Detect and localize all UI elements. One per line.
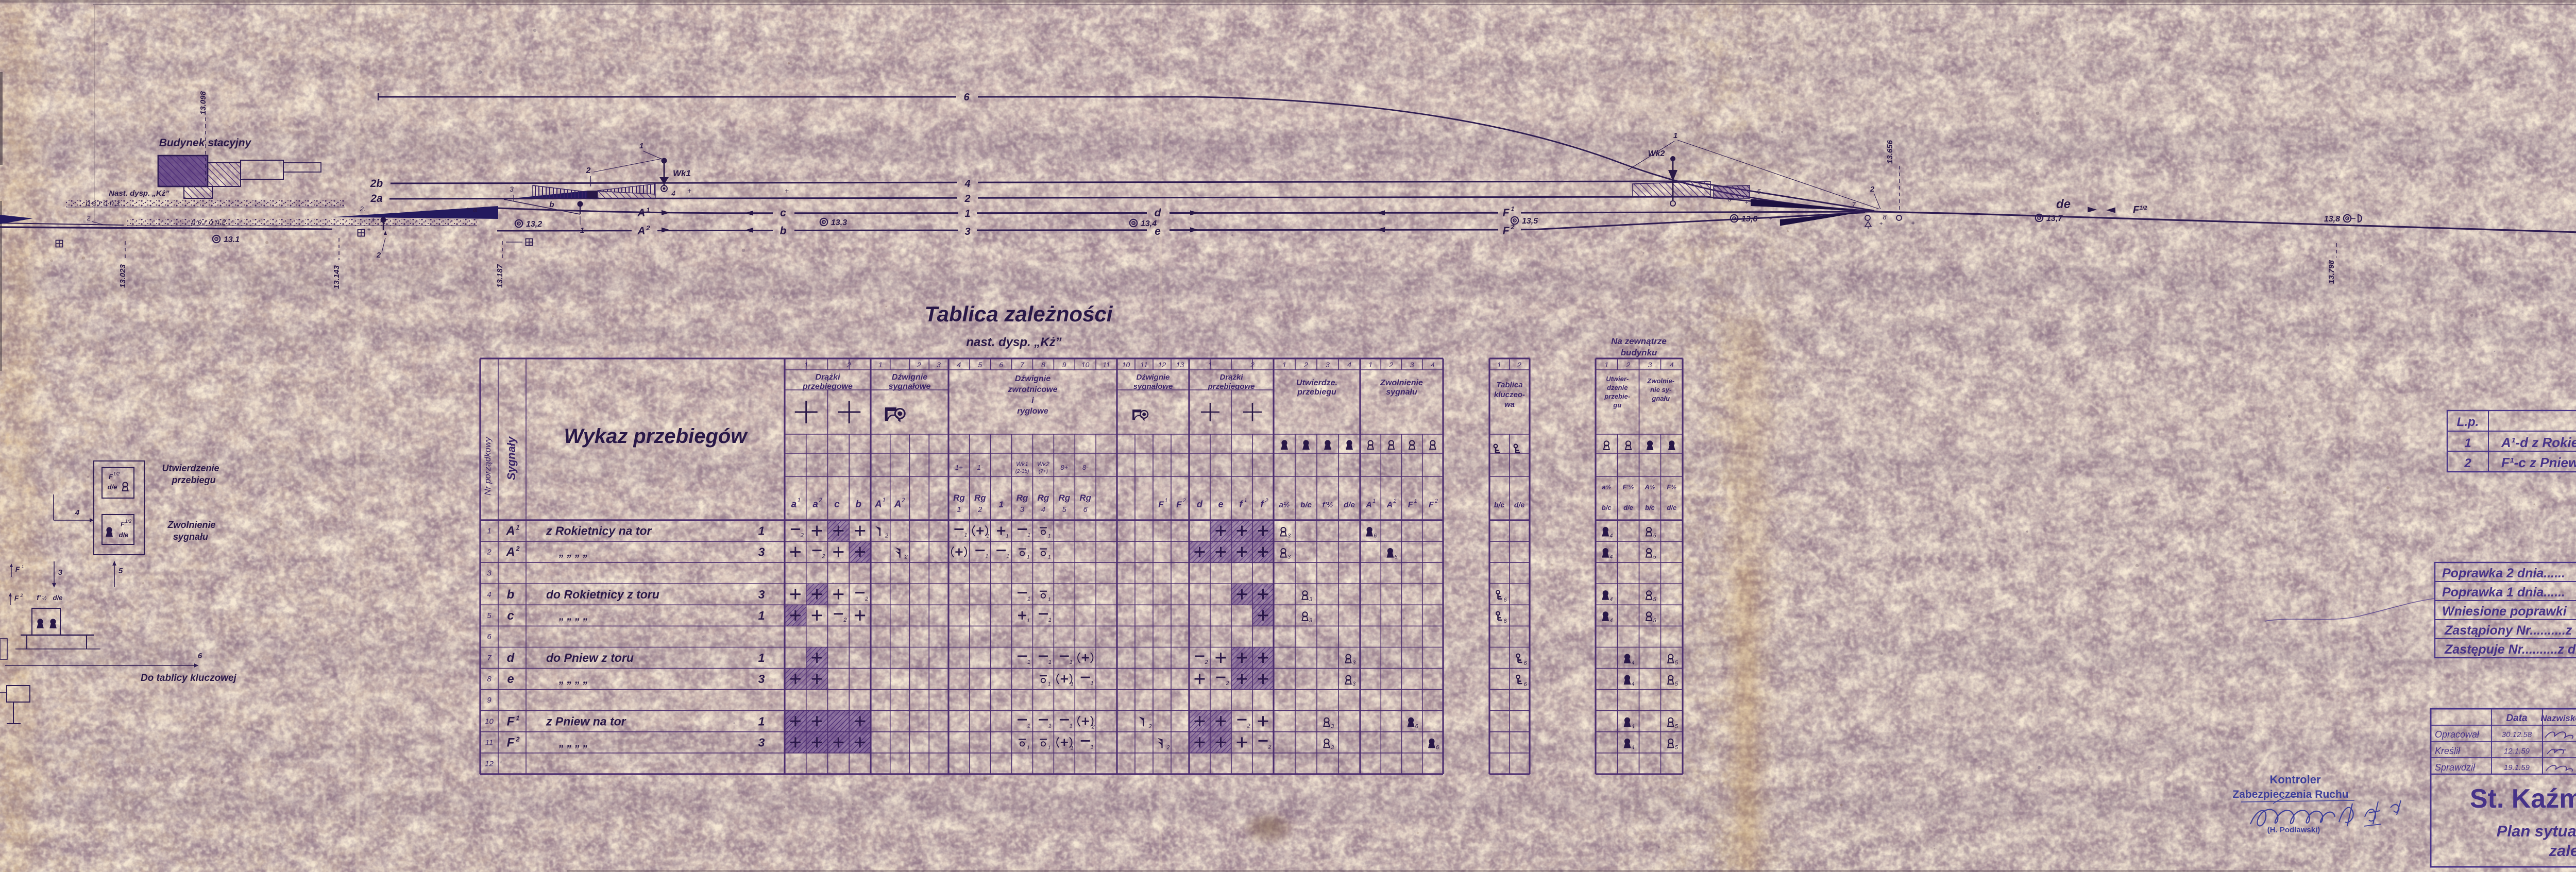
svg-text:2: 2 bbox=[1204, 659, 1208, 665]
svg-text:d/e: d/e bbox=[119, 531, 129, 539]
svg-text:1: 1 bbox=[1282, 361, 1286, 369]
svg-text:Poprawka 2 dnia......: Poprawka 2 dnia...... bbox=[2442, 566, 2565, 580]
svg-text:2: 2 bbox=[646, 224, 650, 232]
svg-text:Drążki: Drążki bbox=[815, 373, 840, 382]
svg-text:13,5: 13,5 bbox=[1522, 217, 1538, 226]
svg-text:2: 2 bbox=[376, 251, 381, 260]
svg-text:4: 4 bbox=[487, 590, 491, 599]
svg-text:7: 7 bbox=[1852, 201, 1856, 209]
svg-text:5: 5 bbox=[118, 567, 123, 575]
svg-text:13.187: 13.187 bbox=[496, 264, 504, 288]
svg-text:F: F bbox=[507, 714, 515, 728]
svg-text:gu: gu bbox=[1613, 401, 1621, 409]
svg-text:1: 1 bbox=[804, 361, 808, 369]
svg-text:3: 3 bbox=[1020, 505, 1025, 514]
svg-text:f'½: f'½ bbox=[1322, 501, 1333, 509]
svg-text:1+: 1+ bbox=[955, 464, 963, 471]
svg-text:1: 1 bbox=[1372, 498, 1376, 504]
svg-text:F: F bbox=[1503, 225, 1510, 237]
svg-text:6: 6 bbox=[1503, 618, 1507, 624]
svg-text:1/2: 1/2 bbox=[113, 471, 120, 476]
svg-text:Dźwignie: Dźwignie bbox=[1136, 373, 1170, 382]
svg-text:1: 1 bbox=[798, 497, 801, 504]
svg-text:2: 2 bbox=[901, 497, 905, 504]
svg-text:A: A bbox=[637, 207, 645, 219]
svg-text:St. Kaźmierz Wlkp.: St. Kaźmierz Wlkp. bbox=[2470, 784, 2576, 814]
svg-text:2: 2 bbox=[1388, 361, 1393, 369]
svg-text:sygnału: sygnału bbox=[173, 532, 208, 542]
svg-text:Dźwignie: Dźwignie bbox=[892, 373, 927, 382]
svg-text:4: 4 bbox=[1609, 618, 1613, 624]
svg-text:5: 5 bbox=[1653, 618, 1656, 624]
svg-text:1: 1 bbox=[1048, 723, 1052, 729]
svg-text:5: 5 bbox=[1653, 596, 1656, 603]
svg-text:1: 1 bbox=[1027, 555, 1030, 560]
svg-text:4: 4 bbox=[1670, 361, 1674, 369]
svg-text:2: 2 bbox=[846, 361, 851, 369]
svg-text:19.1.59: 19.1.59 bbox=[2504, 763, 2530, 772]
svg-text:3: 3 bbox=[758, 588, 765, 601]
svg-text:2: 2 bbox=[486, 548, 492, 557]
svg-text:Zastąpiony Nr..........z dnia: Zastąpiony Nr..........z dnia...........… bbox=[2444, 623, 2576, 638]
svg-text:2: 2 bbox=[1626, 361, 1631, 369]
svg-text:d/e: d/e bbox=[1667, 504, 1676, 511]
svg-text:1: 1 bbox=[1048, 555, 1051, 560]
svg-text:11: 11 bbox=[485, 738, 494, 747]
svg-text:(H. Podlawski): (H. Podlawski) bbox=[2267, 826, 2320, 834]
svg-text:1: 1 bbox=[1497, 361, 1501, 369]
svg-text:2: 2 bbox=[964, 193, 970, 204]
svg-text:1: 1 bbox=[1027, 659, 1030, 665]
svg-text:1: 1 bbox=[1164, 498, 1167, 504]
svg-text:11: 11 bbox=[1103, 361, 1110, 369]
svg-text:F: F bbox=[1176, 500, 1182, 509]
svg-text:6: 6 bbox=[1523, 660, 1527, 666]
svg-text:1: 1 bbox=[1048, 681, 1051, 687]
svg-text:6: 6 bbox=[198, 652, 202, 660]
svg-text:Opracował: Opracował bbox=[2435, 729, 2480, 740]
svg-text:2: 2 bbox=[1246, 723, 1250, 729]
svg-text:2: 2 bbox=[515, 735, 520, 743]
svg-text:F: F bbox=[1408, 501, 1414, 509]
svg-text:Data: Data bbox=[2506, 713, 2528, 724]
svg-text:10: 10 bbox=[485, 717, 494, 726]
svg-text:1: 1 bbox=[21, 564, 24, 569]
svg-text:2: 2 bbox=[865, 596, 868, 602]
svg-text:1: 1 bbox=[1070, 723, 1073, 729]
svg-text:3: 3 bbox=[487, 569, 492, 578]
svg-text:1: 1 bbox=[878, 361, 883, 369]
svg-text:d/e: d/e bbox=[1344, 501, 1355, 509]
svg-text:Wk1: Wk1 bbox=[1016, 460, 1028, 468]
svg-text:1: 1 bbox=[957, 505, 961, 514]
svg-text:Utwierdzenie: Utwierdzenie bbox=[162, 463, 219, 473]
svg-text:2: 2 bbox=[1434, 498, 1438, 504]
svg-text:1: 1 bbox=[516, 524, 519, 532]
svg-text:c: c bbox=[834, 499, 840, 510]
svg-text:12: 12 bbox=[1158, 361, 1166, 369]
svg-text:2: 2 bbox=[1393, 498, 1396, 504]
svg-text:d/e: d/e bbox=[53, 594, 63, 602]
svg-text:5: 5 bbox=[1675, 744, 1679, 750]
svg-text:e: e bbox=[507, 672, 514, 686]
svg-text:10: 10 bbox=[1122, 361, 1130, 369]
svg-text:13.1: 13.1 bbox=[224, 235, 240, 244]
svg-text:b/c: b/c bbox=[1602, 504, 1612, 511]
svg-text:4: 4 bbox=[1609, 533, 1613, 539]
svg-text:c: c bbox=[507, 609, 514, 623]
svg-text:Wk1: Wk1 bbox=[673, 168, 691, 178]
svg-text:A: A bbox=[505, 545, 515, 559]
svg-text:Rg: Rg bbox=[1058, 493, 1070, 503]
svg-text:1: 1 bbox=[1070, 659, 1073, 665]
svg-text:8: 8 bbox=[487, 675, 492, 683]
svg-text:Wk2: Wk2 bbox=[1648, 149, 1665, 158]
svg-text:A: A bbox=[1365, 501, 1372, 509]
svg-text:Utwier-: Utwier- bbox=[1606, 375, 1629, 383]
svg-text:1/2: 1/2 bbox=[2139, 205, 2147, 211]
svg-text:z Pniew na tor: z Pniew na tor bbox=[546, 714, 626, 728]
svg-text:A: A bbox=[505, 524, 515, 538]
svg-text:4: 4 bbox=[957, 361, 961, 369]
svg-text:4: 4 bbox=[1631, 681, 1634, 687]
svg-text:13,7: 13,7 bbox=[2046, 214, 2063, 223]
svg-text:6: 6 bbox=[487, 632, 492, 641]
svg-text:13,4: 13,4 bbox=[1141, 219, 1157, 228]
svg-text:b: b bbox=[855, 499, 861, 510]
svg-text:½: ½ bbox=[42, 595, 46, 602]
svg-text:13.798: 13.798 bbox=[2327, 260, 2336, 284]
svg-text:a: a bbox=[812, 499, 818, 510]
svg-text:6: 6 bbox=[1083, 505, 1088, 514]
svg-text:1/2: 1/2 bbox=[125, 519, 132, 524]
svg-text:Zastępuje Nr..........z dnia.: Zastępuje Nr..........z dnia............… bbox=[2444, 642, 2576, 657]
svg-text:b/c: b/c bbox=[1645, 504, 1655, 511]
svg-text:7: 7 bbox=[487, 654, 492, 662]
svg-text:3: 3 bbox=[1309, 596, 1313, 603]
svg-text:1: 1 bbox=[580, 226, 584, 235]
svg-text:Rg: Rg bbox=[1038, 493, 1049, 503]
svg-text:F: F bbox=[1158, 500, 1164, 509]
svg-text:de: de bbox=[2056, 197, 2071, 211]
svg-text:1: 1 bbox=[964, 208, 970, 219]
svg-text:b/c: b/c bbox=[1494, 501, 1504, 509]
svg-text:3: 3 bbox=[1331, 723, 1334, 729]
svg-text:1: 1 bbox=[758, 714, 765, 728]
svg-text:F: F bbox=[2133, 204, 2140, 216]
svg-text:F'½: F'½ bbox=[1623, 483, 1634, 491]
svg-text:6: 6 bbox=[1523, 681, 1527, 688]
svg-text:a½: a½ bbox=[1602, 483, 1611, 491]
svg-text:2: 2 bbox=[1267, 744, 1271, 750]
svg-text:13,2: 13,2 bbox=[526, 220, 542, 229]
svg-text:„ „ „ „: „ „ „ „ bbox=[558, 738, 588, 749]
svg-text:1: 1 bbox=[1414, 498, 1417, 504]
svg-text:Nast. dysp. „Kż”: Nast. dysp. „Kż” bbox=[109, 189, 170, 198]
svg-text:Wykaz przebiegów: Wykaz przebiegów bbox=[564, 425, 749, 448]
svg-text:zależności: zależności bbox=[2548, 842, 2576, 860]
svg-text:nie sy-: nie sy- bbox=[1650, 386, 1671, 394]
svg-text:1: 1 bbox=[1511, 205, 1514, 213]
svg-text:1: 1 bbox=[1048, 534, 1051, 539]
svg-text:6: 6 bbox=[1503, 597, 1507, 603]
svg-text:5: 5 bbox=[978, 361, 982, 369]
svg-text:dzenie: dzenie bbox=[1607, 384, 1628, 391]
svg-text:4: 4 bbox=[1609, 554, 1613, 560]
svg-text:przebie-: przebie- bbox=[1604, 392, 1630, 400]
svg-text:2: 2 bbox=[800, 533, 804, 539]
svg-text:Rg: Rg bbox=[1016, 493, 1028, 503]
svg-text:13.143: 13.143 bbox=[332, 265, 341, 289]
svg-text:1: 1 bbox=[1673, 131, 1677, 140]
svg-text:Wniesione poprawki: Wniesione poprawki bbox=[2442, 604, 2567, 619]
svg-text:5: 5 bbox=[1727, 195, 1732, 203]
svg-text:1: 1 bbox=[1048, 617, 1052, 623]
svg-text:8: 8 bbox=[1883, 213, 1887, 221]
svg-text:4: 4 bbox=[75, 508, 80, 517]
svg-text:8: 8 bbox=[1041, 361, 1045, 369]
svg-text:5: 5 bbox=[1062, 505, 1067, 514]
svg-text:A¹-d z Rokietnicy do Pniew: A¹-d z Rokietnicy do Pniew po torze Nr. … bbox=[2501, 435, 2576, 450]
svg-text:+: + bbox=[466, 205, 469, 212]
svg-text:2a: 2a bbox=[370, 193, 383, 204]
svg-text:3: 3 bbox=[758, 672, 765, 686]
svg-text:3: 3 bbox=[1287, 533, 1291, 539]
svg-text:Kontroler: Kontroler bbox=[2270, 773, 2321, 786]
svg-text:2: 2 bbox=[977, 505, 982, 514]
svg-text:kluczeo-: kluczeo- bbox=[1494, 390, 1525, 399]
svg-text:2: 2 bbox=[822, 554, 825, 560]
svg-text:4: 4 bbox=[1347, 361, 1351, 369]
svg-text:1: 1 bbox=[1244, 498, 1247, 504]
svg-text:1: 1 bbox=[1006, 534, 1009, 539]
svg-text:sygnałowe: sygnałowe bbox=[1133, 382, 1173, 391]
svg-text:4: 4 bbox=[671, 189, 675, 197]
svg-text:9: 9 bbox=[487, 696, 492, 705]
svg-text:1: 1 bbox=[646, 206, 650, 214]
svg-text:1: 1 bbox=[639, 142, 643, 150]
svg-text:5: 5 bbox=[1675, 723, 1679, 729]
svg-text:b: b bbox=[780, 225, 787, 237]
svg-text:do Pniew z toru: do Pniew z toru bbox=[546, 651, 634, 664]
svg-text:5: 5 bbox=[1653, 554, 1656, 560]
svg-text:Zwolnienie: Zwolnienie bbox=[167, 520, 215, 530]
svg-text:6: 6 bbox=[1394, 554, 1398, 560]
svg-text:1: 1 bbox=[986, 534, 989, 540]
svg-text:2: 2 bbox=[1517, 361, 1521, 369]
svg-text:1: 1 bbox=[964, 533, 967, 539]
svg-text:Do tablicy kluczowej: Do tablicy kluczowej bbox=[141, 673, 237, 683]
svg-text:3: 3 bbox=[1326, 361, 1330, 369]
svg-text:6: 6 bbox=[1436, 744, 1439, 750]
svg-text:1: 1 bbox=[2464, 436, 2471, 450]
svg-text:„ „ „ „: „ „ „ „ bbox=[558, 548, 588, 559]
svg-text:F: F bbox=[109, 473, 113, 481]
svg-text:Rg: Rg bbox=[953, 493, 965, 503]
svg-text:d: d bbox=[1155, 207, 1162, 219]
svg-text:Sygnały: Sygnały bbox=[505, 436, 518, 480]
svg-text:Wk2: Wk2 bbox=[1037, 460, 1049, 468]
svg-text:11: 11 bbox=[1140, 361, 1148, 369]
svg-text:(7+): (7+) bbox=[1039, 469, 1048, 474]
svg-text:Zwolnie-: Zwolnie- bbox=[1647, 377, 1674, 385]
svg-text:3: 3 bbox=[1352, 660, 1356, 666]
svg-text:Zabezpieczenia Ruchu: Zabezpieczenia Ruchu bbox=[2232, 789, 2348, 800]
svg-text:3: 3 bbox=[937, 361, 941, 369]
svg-text:do Rokietnicy z toru: do Rokietnicy z toru bbox=[546, 588, 659, 601]
svg-text:zwrotnicowe: zwrotnicowe bbox=[1007, 385, 1057, 394]
svg-text:Tablica: Tablica bbox=[1496, 381, 1522, 389]
svg-text:F: F bbox=[121, 520, 125, 528]
svg-text:2: 2 bbox=[904, 554, 908, 560]
svg-text:6: 6 bbox=[1757, 187, 1761, 195]
svg-text:1: 1 bbox=[1027, 533, 1030, 539]
svg-text:3: 3 bbox=[758, 545, 765, 559]
svg-text:2: 2 bbox=[515, 545, 520, 553]
svg-text:4: 4 bbox=[964, 178, 970, 190]
svg-text:Zwolnienie: Zwolnienie bbox=[1380, 379, 1423, 387]
svg-text:8+: 8+ bbox=[1060, 464, 1068, 471]
svg-text:13,6: 13,6 bbox=[1741, 215, 1757, 224]
svg-text:„ „ „ „: „ „ „ „ bbox=[558, 611, 588, 622]
svg-text:2: 2 bbox=[1091, 724, 1095, 730]
svg-text:F½: F½ bbox=[1667, 483, 1676, 491]
svg-text:F: F bbox=[14, 594, 19, 602]
svg-text:2: 2 bbox=[1166, 744, 1170, 750]
svg-text:6: 6 bbox=[1415, 723, 1419, 729]
svg-text:2: 2 bbox=[1148, 723, 1151, 729]
svg-text:2: 2 bbox=[843, 617, 846, 623]
svg-text:+: + bbox=[1769, 215, 1772, 222]
svg-text:4: 4 bbox=[1631, 660, 1634, 666]
svg-text:3: 3 bbox=[1309, 618, 1313, 624]
svg-text:1: 1 bbox=[1048, 745, 1051, 750]
svg-text:1: 1 bbox=[1091, 744, 1094, 750]
svg-text:5: 5 bbox=[487, 611, 492, 620]
svg-text:3: 3 bbox=[1352, 681, 1356, 687]
svg-text:3: 3 bbox=[58, 568, 63, 577]
svg-text:Kreślił: Kreślił bbox=[2435, 746, 2461, 756]
svg-text:F: F bbox=[1429, 501, 1434, 509]
svg-text:3: 3 bbox=[758, 736, 765, 749]
svg-text:3: 3 bbox=[1410, 361, 1414, 369]
svg-text:budynku: budynku bbox=[1621, 348, 1657, 357]
svg-text:3: 3 bbox=[964, 226, 970, 237]
svg-text:10: 10 bbox=[1081, 361, 1090, 369]
svg-text:2: 2 bbox=[1870, 185, 1875, 194]
svg-text:2.: 2. bbox=[360, 205, 366, 213]
svg-text:b: b bbox=[549, 200, 554, 209]
svg-text:Rg: Rg bbox=[974, 493, 986, 503]
svg-text:+: + bbox=[371, 216, 375, 223]
svg-text:2: 2 bbox=[885, 533, 888, 539]
svg-text:p e r o n 2: p e r o n 2 bbox=[191, 218, 226, 227]
svg-text:6: 6 bbox=[999, 361, 1003, 369]
svg-text:A½: A½ bbox=[1644, 483, 1655, 491]
svg-text:c: c bbox=[780, 207, 786, 219]
svg-text:Drążki: Drążki bbox=[1219, 373, 1243, 382]
svg-text:a: a bbox=[473, 205, 477, 213]
svg-text:1: 1 bbox=[1071, 745, 1074, 751]
svg-text:1: 1 bbox=[1027, 723, 1030, 729]
svg-text:+: + bbox=[1879, 220, 1883, 227]
svg-text:F¹-c z Pniew do Rokietnicy: F¹-c z Pniew do Rokietnicy po torze Nr. … bbox=[2501, 455, 2576, 470]
svg-text:ryglowe: ryglowe bbox=[1017, 407, 1048, 416]
svg-text:4: 4 bbox=[1041, 505, 1045, 514]
svg-text:13,8: 13,8 bbox=[2324, 215, 2340, 224]
svg-text:2: 2 bbox=[1264, 498, 1268, 504]
svg-text:Rg: Rg bbox=[1079, 493, 1091, 503]
svg-text:2: 2 bbox=[586, 166, 591, 175]
svg-text:wa: wa bbox=[1504, 400, 1515, 409]
svg-text:2: 2 bbox=[1303, 361, 1308, 369]
svg-text:Nr porządkowy: Nr porządkowy bbox=[483, 436, 493, 495]
svg-text:3: 3 bbox=[1648, 361, 1652, 369]
svg-text:3: 3 bbox=[510, 185, 514, 193]
svg-text:+: + bbox=[1911, 219, 1914, 227]
svg-text:12.1.59: 12.1.59 bbox=[2504, 747, 2530, 756]
svg-text:gnału: gnału bbox=[1651, 395, 1670, 402]
svg-text:1: 1 bbox=[1027, 596, 1030, 602]
svg-text:a: a bbox=[791, 499, 797, 510]
svg-text:Utwierdze.: Utwierdze. bbox=[1296, 379, 1337, 387]
svg-text:przebiegu: przebiegu bbox=[171, 475, 215, 485]
svg-text:1: 1 bbox=[1091, 680, 1094, 687]
svg-text:1-: 1- bbox=[977, 464, 984, 471]
svg-text:2: 2 bbox=[917, 361, 921, 369]
svg-text:p e r o n 1: p e r o n 1 bbox=[85, 199, 121, 208]
svg-text:A: A bbox=[874, 499, 882, 510]
svg-text:4: 4 bbox=[1431, 361, 1435, 369]
svg-text:2: 2 bbox=[1225, 680, 1229, 687]
svg-text:9: 9 bbox=[1062, 361, 1066, 369]
svg-text:sygnałowe: sygnałowe bbox=[889, 382, 931, 391]
svg-text:4: 4 bbox=[1631, 723, 1634, 729]
svg-text:2: 2 bbox=[1250, 361, 1255, 369]
svg-text:30.12.58: 30.12.58 bbox=[2502, 730, 2532, 739]
svg-text:L.p.: L.p. bbox=[2457, 415, 2479, 429]
svg-text:6: 6 bbox=[1374, 533, 1377, 539]
svg-text:+: + bbox=[367, 226, 370, 233]
svg-text:e: e bbox=[1218, 499, 1223, 509]
svg-text:Sprawdził: Sprawdził bbox=[2435, 762, 2476, 773]
svg-text:+: + bbox=[1744, 199, 1748, 206]
svg-text:13: 13 bbox=[1176, 361, 1184, 369]
svg-text:sygnału: sygnału bbox=[1386, 388, 1417, 397]
svg-text:2: 2 bbox=[2464, 456, 2471, 470]
svg-text:f': f' bbox=[37, 594, 41, 602]
svg-text:7: 7 bbox=[1020, 361, 1025, 369]
svg-text:2b: 2b bbox=[370, 178, 383, 190]
svg-text:b: b bbox=[507, 588, 515, 602]
svg-text:i: i bbox=[1031, 396, 1034, 405]
svg-text:5: 5 bbox=[1675, 660, 1679, 666]
svg-text:1: 1 bbox=[985, 554, 988, 560]
svg-text:1: 1 bbox=[758, 609, 765, 622]
svg-text:5: 5 bbox=[1675, 681, 1679, 687]
svg-text:13.023: 13.023 bbox=[118, 264, 127, 288]
svg-text:1: 1 bbox=[516, 714, 519, 722]
svg-text:Tablica zależności: Tablica zależności bbox=[925, 302, 1113, 326]
svg-text:1: 1 bbox=[758, 651, 765, 664]
svg-text:2: 2 bbox=[86, 214, 91, 222]
svg-text:+: + bbox=[687, 186, 691, 195]
svg-text:13.098: 13.098 bbox=[199, 91, 208, 115]
svg-text:F: F bbox=[15, 565, 20, 573]
svg-text:5: 5 bbox=[1653, 533, 1656, 539]
svg-text:nast. dysp. „Kż”: nast. dysp. „Kż” bbox=[966, 335, 1061, 349]
svg-text:F: F bbox=[1503, 207, 1510, 219]
